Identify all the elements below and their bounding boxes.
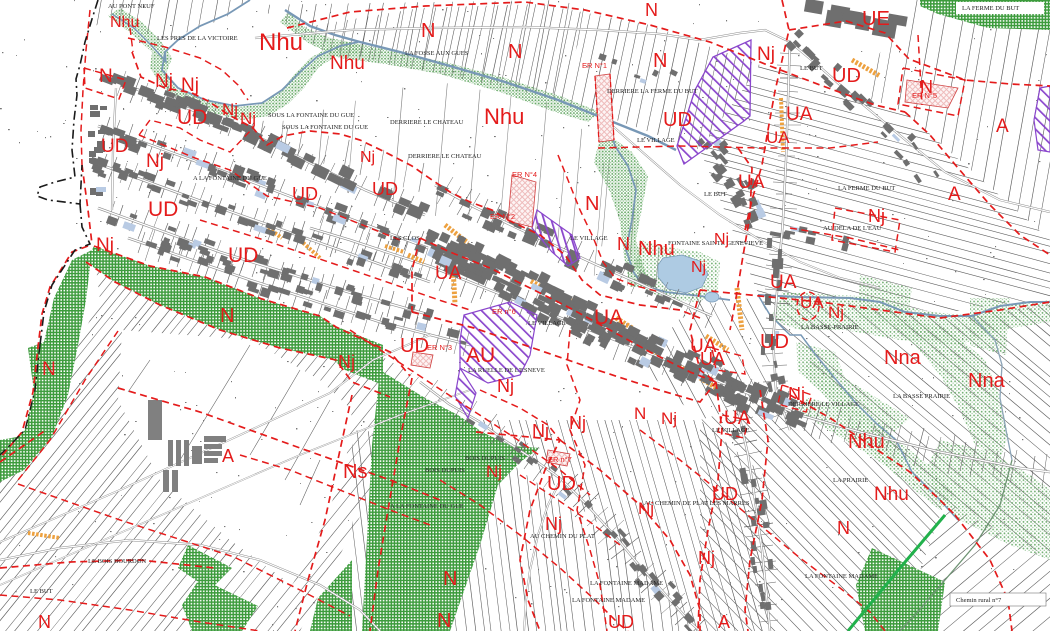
- svg-text:ER n°7: ER n°7: [548, 455, 572, 464]
- svg-text:Nj: Nj: [181, 75, 199, 96]
- svg-text:N: N: [837, 518, 850, 538]
- svg-text:Nhu: Nhu: [638, 238, 675, 260]
- svg-text:A LA FONTAINE DU GUE: A LA FONTAINE DU GUE: [390, 503, 464, 510]
- svg-text:LA BASSE-PRAIRIE: LA BASSE-PRAIRIE: [801, 324, 859, 331]
- svg-text:N: N: [645, 0, 658, 20]
- svg-text:AU DELA DE L'EAU: AU DELA DE L'EAU: [823, 225, 882, 232]
- svg-text:BOIS DUPUIS: BOIS DUPUIS: [425, 467, 465, 474]
- svg-text:UD: UD: [148, 198, 178, 221]
- svg-text:N: N: [220, 305, 234, 327]
- svg-text:Nj: Nj: [714, 231, 729, 248]
- svg-text:LE VILLAGE: LE VILLAGE: [637, 137, 675, 144]
- svg-text:N: N: [443, 568, 457, 590]
- svg-text:A: A: [996, 116, 1009, 137]
- svg-text:Nj: Nj: [638, 499, 654, 518]
- svg-text:Nj: Nj: [240, 109, 256, 128]
- svg-text:Nj: Nj: [757, 44, 775, 65]
- svg-text:N: N: [653, 50, 667, 72]
- svg-text:DERRIERE LA FERME DU BUT: DERRIERE LA FERME DU BUT: [607, 88, 698, 95]
- svg-text:LE BUT: LE BUT: [800, 65, 823, 72]
- svg-text:LA FERME DU BUT: LA FERME DU BUT: [838, 185, 895, 192]
- svg-text:Nj: Nj: [146, 151, 164, 172]
- svg-text:UD: UD: [228, 244, 258, 267]
- svg-text:N: N: [437, 610, 451, 631]
- svg-text:DERRIERE LE CHATEAU: DERRIERE LE CHATEAU: [408, 153, 482, 160]
- svg-text:Nj: Nj: [155, 71, 173, 92]
- svg-text:Nj: Nj: [691, 259, 706, 276]
- svg-text:UA: UA: [594, 306, 623, 329]
- svg-text:UD: UD: [608, 612, 634, 631]
- svg-text:UA: UA: [724, 408, 751, 429]
- svg-text:AU CHEMIN DU PLAT: AU CHEMIN DU PLAT: [530, 533, 595, 540]
- svg-text:LA FONTAINE MADAME: LA FONTAINE MADAME: [805, 573, 878, 580]
- svg-text:ER N°1: ER N°1: [582, 61, 607, 70]
- svg-text:Nna: Nna: [884, 347, 922, 369]
- svg-text:LE VILLAGE: LE VILLAGE: [528, 320, 566, 327]
- svg-text:ER N°3: ER N°3: [427, 343, 452, 352]
- svg-text:Nhu: Nhu: [330, 53, 365, 74]
- svg-text:N: N: [421, 20, 435, 42]
- svg-text:LA RUELLE DE L'ESNEVE: LA RUELLE DE L'ESNEVE: [468, 367, 545, 374]
- svg-text:N: N: [634, 404, 646, 423]
- svg-text:A LA FONTAINE DU GUE: A LA FONTAINE DU GUE: [193, 175, 267, 182]
- svg-text:Nj: Nj: [360, 149, 375, 166]
- svg-text:UD: UD: [663, 109, 692, 131]
- svg-text:Nj: Nj: [96, 235, 114, 256]
- svg-text:UD: UD: [292, 184, 318, 204]
- svg-text:Nj: Nj: [486, 462, 502, 481]
- svg-text:N: N: [38, 612, 51, 631]
- svg-text:UA: UA: [800, 293, 824, 312]
- svg-text:Chemin rural n°7: Chemin rural n°7: [956, 597, 1002, 604]
- svg-text:UD: UD: [547, 473, 576, 495]
- svg-text:LA BASSE PRAIRIE: LA BASSE PRAIRIE: [893, 393, 950, 400]
- svg-text:UA: UA: [770, 272, 797, 293]
- svg-text:LA FOSSE AUX GUES: LA FOSSE AUX GUES: [405, 50, 469, 57]
- svg-text:SOUS LA FONTAINE DU GUE: SOUS LA FONTAINE DU GUE: [282, 124, 368, 131]
- svg-text:Nj: Nj: [497, 376, 514, 396]
- svg-text:Nj: Nj: [338, 352, 355, 372]
- svg-text:LA FONTAINE MADAME: LA FONTAINE MADAME: [572, 597, 645, 604]
- svg-text:Nhu: Nhu: [874, 484, 909, 505]
- svg-text:A: A: [222, 446, 234, 466]
- svg-text:Nj: Nj: [828, 303, 844, 322]
- svg-text:Nj: Nj: [569, 413, 586, 433]
- svg-text:Nj: Nj: [698, 548, 715, 568]
- svg-text:N: N: [508, 41, 522, 63]
- svg-text:LA PRAIRIE: LA PRAIRIE: [833, 477, 868, 484]
- svg-text:ER N°2: ER N°2: [490, 212, 515, 221]
- svg-text:Nj: Nj: [661, 409, 677, 428]
- svg-text:LE BUT: LE BUT: [30, 588, 53, 595]
- svg-text:LE BOIS BOURDON: LE BOIS BOURDON: [88, 558, 146, 565]
- svg-text:ER N°5: ER N°5: [912, 91, 937, 100]
- svg-text:UA: UA: [435, 263, 462, 284]
- svg-text:Nj: Nj: [222, 100, 238, 119]
- svg-text:UA: UA: [690, 336, 717, 357]
- svg-text:LA FONTAINE MADAME: LA FONTAINE MADAME: [590, 580, 663, 587]
- svg-text:AU: AU: [466, 344, 495, 367]
- svg-text:UD: UD: [372, 179, 398, 199]
- svg-text:UA: UA: [786, 104, 813, 125]
- svg-text:SOUS LA FONTAINE DU GUE: SOUS LA FONTAINE DU GUE: [268, 112, 354, 119]
- svg-text:DERRIERE LE CHATEAU: DERRIERE LE CHATEAU: [390, 119, 464, 126]
- svg-text:LES PRES DE LA VICTOIRE: LES PRES DE LA VICTOIRE: [157, 35, 238, 42]
- svg-text:Nj: Nj: [868, 206, 885, 226]
- svg-text:Nj: Nj: [545, 514, 562, 534]
- svg-text:UD: UD: [101, 136, 128, 157]
- svg-text:UD: UD: [760, 331, 789, 353]
- svg-text:Nhu: Nhu: [848, 431, 885, 453]
- svg-text:Ns: Ns: [343, 461, 367, 483]
- svg-text:LA FERME DU BUT: LA FERME DU BUT: [962, 5, 1019, 12]
- svg-text:N: N: [42, 359, 56, 380]
- svg-text:UE: UE: [862, 8, 890, 30]
- svg-text:N: N: [585, 193, 599, 215]
- svg-text:LES CLOS: LES CLOS: [390, 235, 420, 242]
- svg-text:UD: UD: [177, 106, 207, 129]
- svg-text:Nna: Nna: [968, 370, 1006, 392]
- svg-text:A: A: [948, 184, 961, 205]
- svg-text:BOIS DUPUIS: BOIS DUPUIS: [465, 455, 505, 462]
- svg-text:UA: UA: [766, 128, 790, 147]
- svg-text:Nj: Nj: [532, 421, 549, 441]
- svg-text:Nhu: Nhu: [110, 14, 139, 31]
- svg-text:UD: UD: [712, 484, 738, 504]
- svg-text:LE BUT: LE BUT: [704, 191, 727, 198]
- svg-text:N: N: [99, 66, 113, 87]
- svg-text:Nhu: Nhu: [484, 104, 524, 129]
- svg-text:AU PONT NEUF: AU PONT NEUF: [108, 3, 155, 10]
- svg-text:ER n°6: ER n°6: [492, 307, 516, 316]
- svg-text:LE VILLAGE: LE VILLAGE: [570, 235, 608, 242]
- svg-text:ER N°4: ER N°4: [512, 170, 537, 179]
- svg-text:Nj: Nj: [788, 384, 805, 404]
- svg-text:UD: UD: [400, 335, 429, 357]
- svg-text:A: A: [718, 612, 730, 631]
- svg-text:N: N: [617, 234, 630, 254]
- svg-text:Nhu: Nhu: [259, 29, 303, 56]
- svg-text:UD: UD: [832, 65, 861, 87]
- svg-text:UA: UA: [738, 172, 765, 193]
